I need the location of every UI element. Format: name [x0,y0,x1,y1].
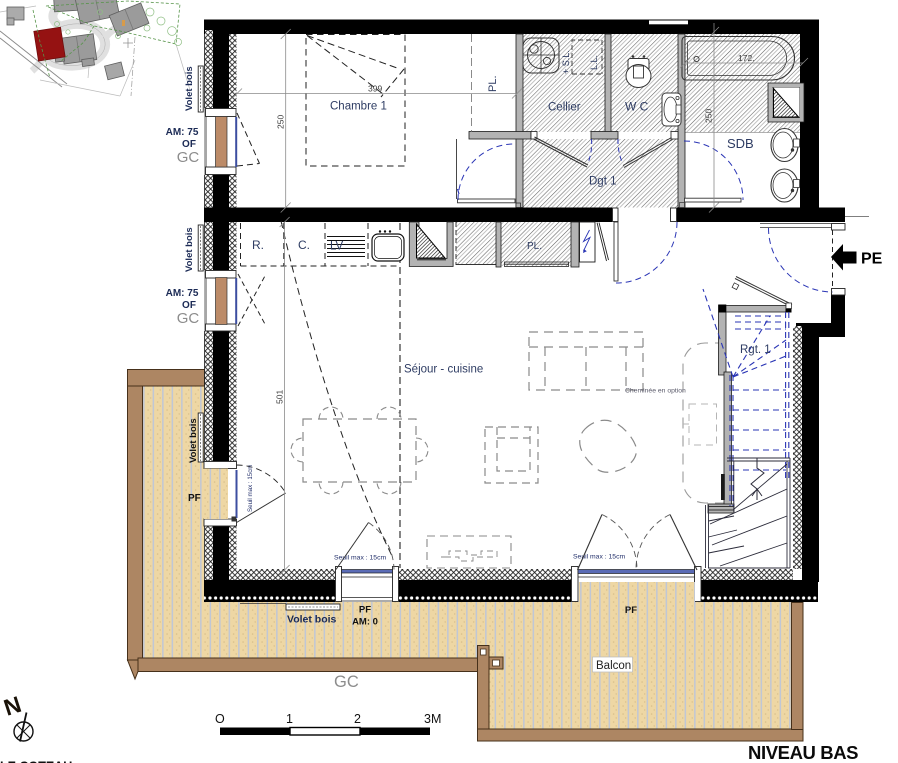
svg-text:Volet bois: Volet bois [184,66,195,111]
svg-text:250: 250 [704,109,714,123]
svg-text:PF: PF [188,493,201,504]
svg-text:Cellier: Cellier [548,102,581,114]
svg-text:Seuil max : 15cm: Seuil max : 15cm [573,554,625,561]
svg-text:Seuil max : 15cm: Seuil max : 15cm [334,555,386,562]
svg-text:3M: 3M [424,712,441,726]
svg-text:399: 399 [368,84,382,94]
svg-text:Cheminée en option: Cheminée en option [625,388,686,395]
svg-text:Seuil max : 15cm: Seuil max : 15cm [247,465,254,512]
svg-text:Séjour - cuisine: Séjour - cuisine [404,364,483,376]
svg-text:250: 250 [276,115,286,129]
svg-text:W C: W C [625,100,649,114]
svg-text:C.: C. [298,238,310,252]
svg-text:Rgt. 1: Rgt. 1 [740,344,771,356]
svg-text:172.: 172. [738,53,755,63]
svg-text:PE: PE [861,251,883,268]
svg-text:PL.: PL. [487,75,499,92]
svg-text:GC: GC [177,310,200,327]
svg-text:O: O [215,712,225,726]
svg-text:GC: GC [334,673,359,691]
svg-text:Volet bois: Volet bois [184,227,195,272]
svg-text:+ S.L.: + S.L. [561,50,571,74]
svg-text:Volet bois: Volet bois [188,418,199,463]
svg-text:NIVEAU BAS: NIVEAU BAS [748,742,858,763]
svg-text:2: 2 [354,712,361,726]
svg-text:PF: PF [359,605,371,616]
svg-text:GC: GC [177,149,200,166]
svg-text:Volet bois: Volet bois [287,614,337,626]
svg-text:501: 501 [275,390,285,404]
svg-text:LE COTEAU: LE COTEAU [0,760,72,763]
svg-text:AM: 0: AM: 0 [352,617,378,628]
svg-text:AM: 75: AM: 75 [166,127,199,138]
svg-text:Dgt 1: Dgt 1 [589,176,617,188]
svg-text:1: 1 [286,712,293,726]
svg-text:PF: PF [625,605,637,616]
svg-text:PL.: PL. [527,241,542,252]
svg-text:SDB: SDB [727,136,754,151]
svg-text:AM: 75: AM: 75 [166,288,199,299]
svg-text:L.L.: L.L. [589,55,599,70]
svg-text:R.: R. [252,238,264,252]
svg-text:LV: LV [330,241,344,253]
svg-text:Chambre 1: Chambre 1 [330,101,387,113]
svg-text:Balcon: Balcon [596,660,631,672]
